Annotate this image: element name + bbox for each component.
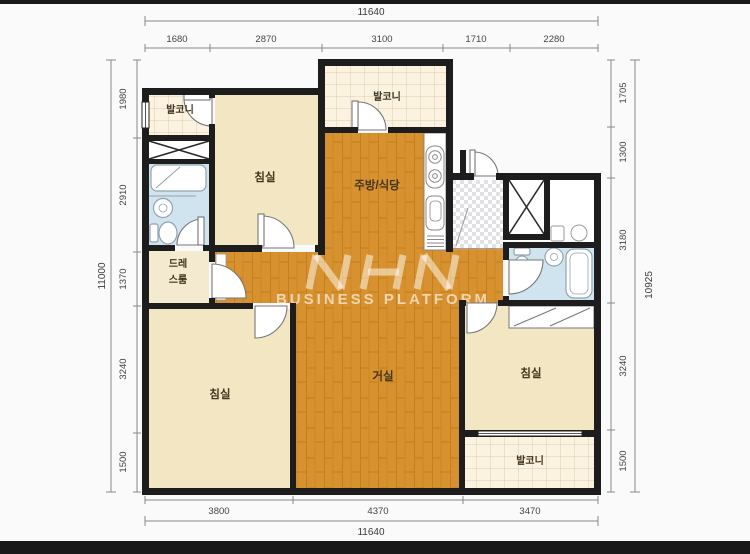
floorplan-page: BUSINESS PLATFORM [0,0,750,554]
floorplan-svg: BUSINESS PLATFORM [0,0,750,554]
room-label-dress-line1: 드레 [169,257,187,270]
dim-top-seg-0: 1680 [166,34,187,45]
front-door-leaf [470,150,475,176]
dim-top-seg-1: 2870 [255,34,276,45]
stove-icon [426,146,444,188]
top-letterbox-bar [0,0,750,4]
dim-top-seg-3: 1710 [465,34,486,45]
balcony-left-window [142,102,149,128]
dim-top-seg-2: 3100 [371,34,392,45]
dim-bottom-total: 11640 [357,527,385,538]
kitchen-counter [424,133,446,250]
dim-right-seg-2: 3180 [618,229,629,250]
kitchen-sink-icon [426,196,444,230]
room-label-balcony-bottom-right: 발코니 [516,454,544,467]
dim-left-seg-2: 1370 [118,268,129,289]
washbasin-left-icon [154,199,173,218]
dim-top-total: 11640 [357,7,385,18]
dim-bottom-seg-0: 3800 [208,506,229,517]
dim-left-seg-0: 1980 [118,88,129,109]
room-label-dress-line2: 스룸 [169,274,187,286]
dim-bottom-seg-2: 3470 [519,506,540,517]
sliding-closet-icon [509,306,594,328]
bedroom-balcony-window [478,431,582,436]
room-label-bedroom-right: 침실 [520,366,541,380]
bathtub-left-icon [151,165,206,191]
room-label-bedroom-bottom-left: 침실 [209,387,230,401]
dim-left-seg-1: 2910 [118,184,129,205]
balcony-top-door-leaf [352,101,358,130]
dim-right-seg-1: 1300 [618,141,629,162]
dim-left-seg-4: 1500 [118,451,129,472]
bathroom-left-door-leaf [198,217,204,245]
room-label-kitchen: 주방/식당 [354,178,400,192]
room-label-bedroom-top-left: 침실 [254,170,275,184]
dim-right-total: 10925 [644,271,655,299]
dim-right-seg-3: 3240 [618,355,629,376]
bathtub-right-icon [566,249,592,298]
dim-left-seg-3: 3240 [118,358,129,379]
dim-bottom-seg-1: 4370 [367,506,388,517]
dim-right-seg-0: 1705 [618,82,629,103]
bottom-letterbox-bar [0,541,750,554]
dim-left-total: 11000 [97,262,108,290]
room-label-balcony-top: 발코니 [373,90,401,103]
dim-right-seg-4: 1500 [618,450,629,471]
entrance-floor [453,180,503,248]
room-label-balcony-top-left: 발코니 [166,103,194,116]
toilet-left-icon [150,222,177,244]
room-label-living: 거실 [372,369,393,383]
utility-basin-icon [571,225,587,241]
dim-top-seg-4: 2280 [543,34,564,45]
washbasin-right-icon [545,248,563,266]
watermark-text: BUSINESS PLATFORM [276,291,490,308]
washer-icon [551,226,564,241]
bedroom-tl-door-leaf [258,214,264,246]
